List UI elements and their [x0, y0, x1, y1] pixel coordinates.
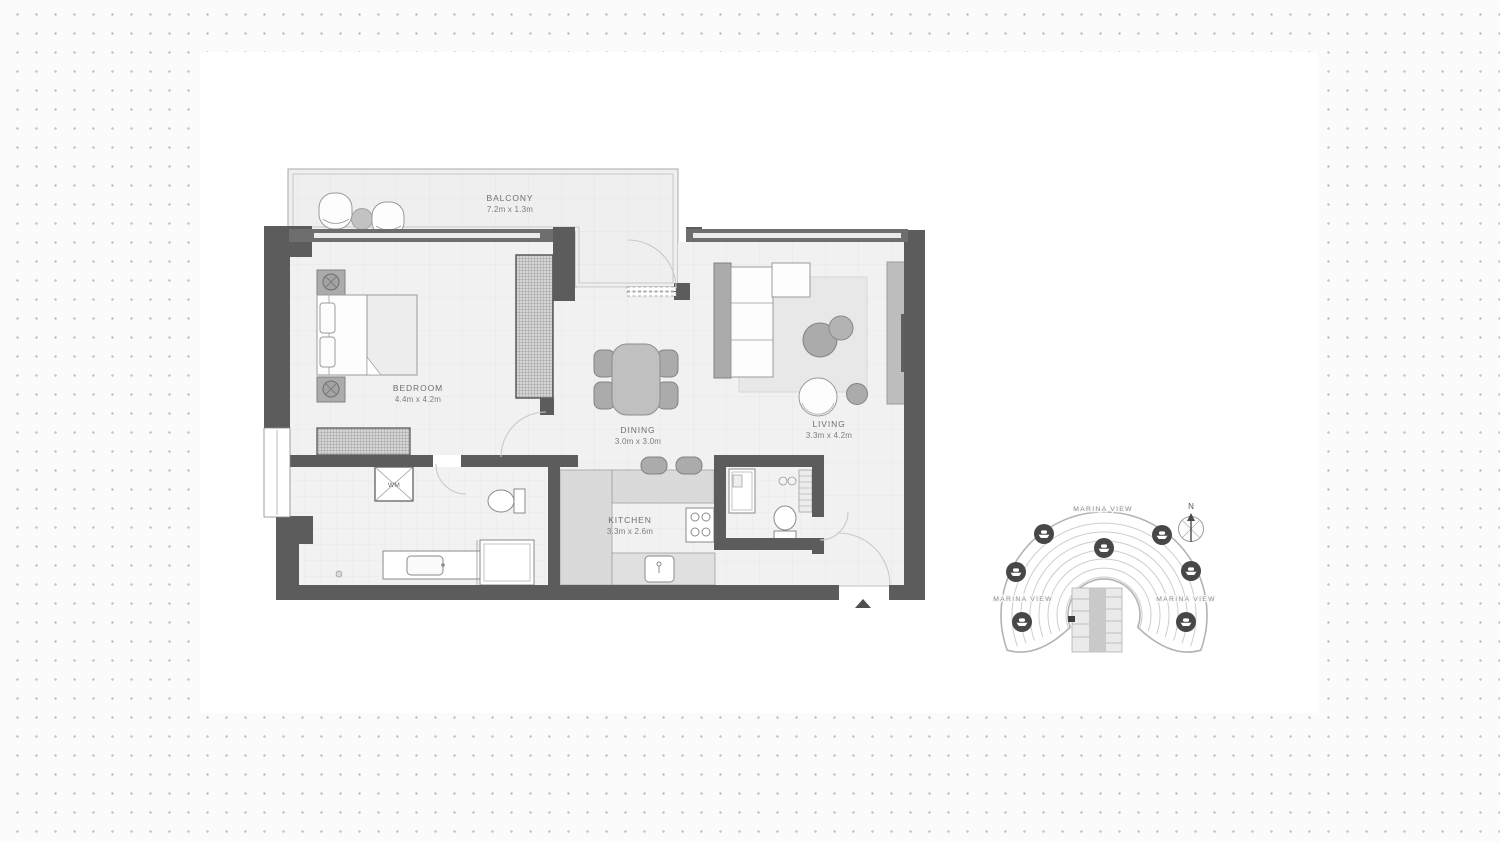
- canvas: WM: [0, 0, 1500, 842]
- wall: [812, 455, 824, 517]
- window-glass: [693, 233, 901, 238]
- window-glass: [314, 233, 540, 238]
- wall: [714, 455, 726, 550]
- wall: [276, 585, 839, 600]
- building-core: [1089, 588, 1106, 652]
- wall: [461, 455, 578, 467]
- spray-icon: [788, 477, 796, 485]
- basin: [407, 556, 443, 575]
- bar-stool: [676, 457, 702, 474]
- wall: [714, 538, 824, 550]
- spray-icon: [779, 477, 787, 485]
- sliding-door: [627, 287, 676, 291]
- boat-icon: [1176, 612, 1196, 632]
- balcony-label: BALCONY: [487, 193, 534, 203]
- floor-plan: WM: [255, 155, 945, 620]
- wall: [714, 455, 824, 467]
- wall: [264, 257, 290, 430]
- wall: [904, 230, 925, 600]
- floor-drain-icon: [336, 571, 342, 577]
- sliding-door: [627, 292, 676, 296]
- bar-stool: [641, 457, 667, 474]
- tv-icon: [901, 314, 904, 372]
- wall: [548, 467, 560, 585]
- washing-machine-label: WM: [388, 482, 400, 489]
- marina-view-label-right: MARINA VIEW: [1156, 596, 1216, 603]
- unit-locator-marker: [1068, 616, 1075, 622]
- wall: [287, 455, 433, 467]
- ensuite-toilet-tank: [774, 531, 796, 539]
- shore-end: [1007, 627, 1070, 652]
- boat-icon: [1006, 562, 1026, 582]
- balcony-table: [352, 209, 373, 230]
- wall: [553, 227, 575, 301]
- wardrobe: [516, 255, 553, 398]
- dining-dimensions: 3.0m x 3.0m: [615, 437, 661, 446]
- wall: [276, 516, 313, 544]
- dining-table: [612, 344, 660, 415]
- compass-north-label: N: [1188, 502, 1194, 511]
- marina-view-label-left: MARINA VIEW: [993, 596, 1053, 603]
- site-map: N MARINA VIEW MARINA VIEW MARINA VIEW: [980, 495, 1225, 665]
- stove: [686, 508, 714, 542]
- ensuite-toilet-bowl: [774, 506, 796, 530]
- kitchen-counter: [560, 470, 612, 585]
- armchair: [799, 378, 837, 416]
- boat-icon: [1094, 538, 1114, 558]
- balcony-dimensions: 7.2m x 1.3m: [487, 205, 533, 214]
- shore-end: [1138, 627, 1201, 652]
- coffee-table-small: [829, 316, 853, 340]
- toilet-tank: [514, 489, 525, 513]
- pillow: [320, 337, 335, 367]
- shower-head-icon: [733, 475, 742, 487]
- building-footprint: [1068, 588, 1122, 652]
- bench: [317, 428, 410, 455]
- boat-icon: [1034, 524, 1054, 544]
- faucet-icon: [441, 563, 445, 567]
- marina-view-label-top: MARINA VIEW: [1073, 506, 1133, 513]
- sofa-chaise: [772, 263, 810, 297]
- boat-icon: [1181, 561, 1201, 581]
- bedroom-dimensions: 4.4m x 4.2m: [395, 395, 441, 404]
- kitchen-label: KITCHEN: [608, 515, 652, 525]
- living-dimensions: 3.3m x 4.2m: [806, 431, 852, 440]
- compass: N: [1179, 502, 1204, 542]
- shelves: [799, 470, 812, 512]
- shower: [480, 540, 534, 585]
- sofa-back: [714, 263, 731, 378]
- blanket: [367, 295, 417, 375]
- pillow: [320, 303, 335, 333]
- sofa-seat: [731, 267, 773, 377]
- boat-icon: [1152, 525, 1172, 545]
- boat-icon: [1012, 612, 1032, 632]
- living-label: LIVING: [812, 419, 845, 429]
- side-table: [847, 384, 868, 405]
- toilet-bowl: [488, 490, 514, 512]
- kitchen-dimensions: 3.3m x 2.6m: [607, 527, 653, 536]
- entrance-marker-icon: [855, 599, 871, 608]
- dining-label: DINING: [620, 425, 655, 435]
- bedroom-label: BEDROOM: [393, 383, 443, 393]
- kitchen-counter: [612, 470, 714, 503]
